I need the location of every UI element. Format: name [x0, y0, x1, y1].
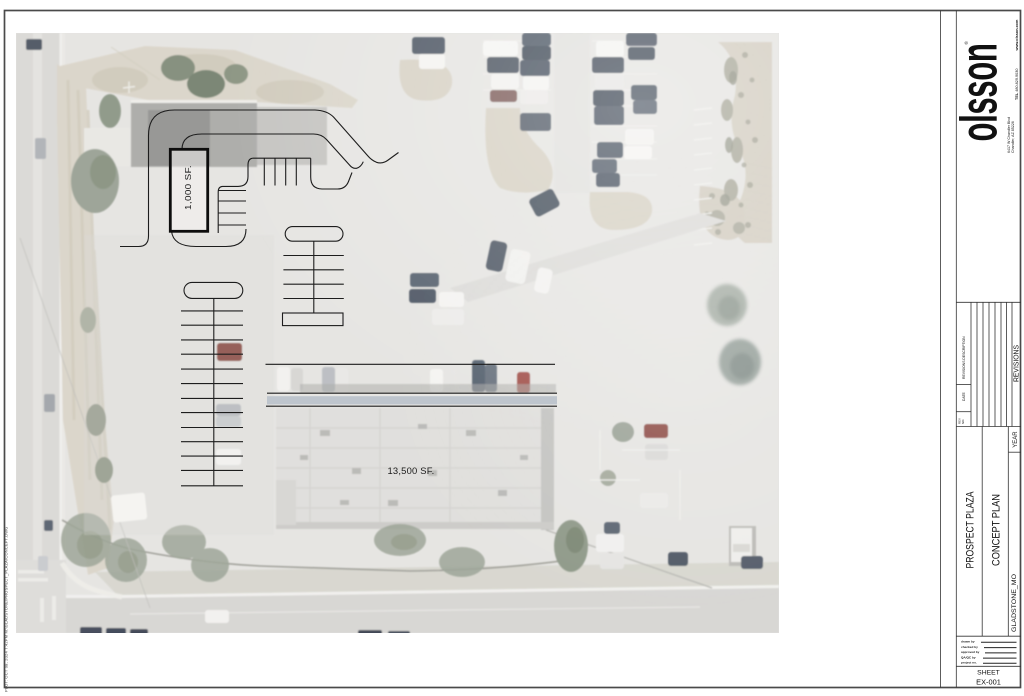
svg-text:drawn by: drawn by [961, 640, 975, 644]
svg-text:www.olsson.com: www.olsson.com [1015, 19, 1019, 51]
svg-text:DATE: DATE [962, 391, 966, 401]
svg-text:TEL 480.829.9030: TEL 480.829.9030 [1015, 69, 1019, 100]
svg-text:REVISIONS DESCRIPTION: REVISIONS DESCRIPTION [962, 336, 966, 379]
svg-text:project no.: project no. [961, 661, 977, 665]
svg-text:checked by: checked by [961, 645, 978, 649]
svg-text:NO.: NO. [961, 419, 965, 424]
svg-text:Chandler, AZ 85226: Chandler, AZ 85226 [1011, 121, 1015, 153]
svg-text:GLADSTONE_MO: GLADSTONE_MO [1011, 574, 1018, 632]
svg-text:SHEET: SHEET [977, 670, 1000, 677]
svg-text:13,500 SF.: 13,500 SF. [388, 466, 435, 476]
svg-text:CONCEPT PLAN: CONCEPT PLAN [991, 494, 1003, 566]
svg-text:approved by: approved by [961, 650, 980, 654]
svg-text:olsson: olsson [949, 43, 1007, 141]
svg-text:QA/QC by: QA/QC by [961, 655, 976, 659]
svg-text:REVISIONS: REVISIONS [1014, 345, 1021, 382]
svg-text:EX-001: EX-001 [976, 677, 1001, 686]
svg-text:YEAR: YEAR [1013, 431, 1019, 448]
svg-text:PROSPECT PLAZA: PROSPECT PLAZA [965, 491, 977, 569]
svg-text:1,000 SF.: 1,000 SF. [184, 165, 193, 210]
